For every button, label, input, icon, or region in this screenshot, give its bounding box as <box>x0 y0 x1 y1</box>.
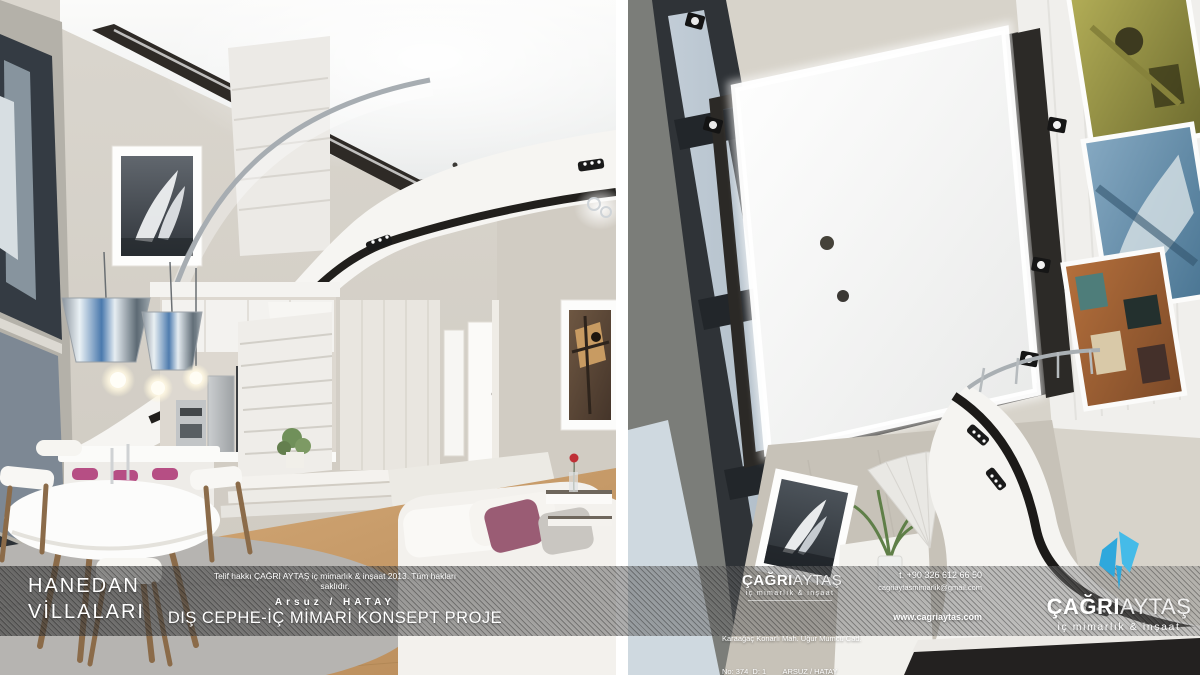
info-band: HANEDAN VİLLALARI Telif hakkı ÇAĞRI AYTA… <box>0 566 1200 636</box>
project-subtitle: DIŞ CEPHE-İÇ MİMARİ KONSEPT PROJE <box>160 609 510 628</box>
brand-logo-large: ÇAĞRIAYTAŞ iç mimarlık & inşaat <box>1038 522 1200 633</box>
address-line-1: Karaağaç Konarlı Mah. Uğur Mumcu Cad. <box>722 633 862 644</box>
presentation-slide: HANEDAN VİLLALARI Telif hakkı ÇAĞRI AYTA… <box>0 0 1200 675</box>
sailboat-artwork <box>112 146 202 266</box>
led-ceiling-panel <box>716 30 1044 460</box>
brand-wordmark-small: ÇAĞRIAYTAŞ <box>742 572 838 589</box>
brand-logo-small: ÇAĞRIAYTAŞ iç mimarlık & inşaat <box>742 572 838 601</box>
address-block: Karaağaç Konarlı Mah. Uğur Mumcu Cad. No… <box>722 610 862 675</box>
brand-wordmark-large: ÇAĞRIAYTAŞ <box>1038 594 1200 620</box>
cagri-aytas-logo-mark-icon <box>1096 522 1142 596</box>
website-text: www.cagriaytas.com <box>878 612 982 622</box>
copyright-text: Telif hakkı ÇAĞRI AYTAŞ iç mimarlık & in… <box>200 571 470 591</box>
brand-tagline-large: iç mimarlık & inşaat <box>1038 621 1200 633</box>
project-title-line2: VİLLALARI <box>28 599 145 625</box>
phone-text: t. +90 326 612 66 50 <box>860 570 982 580</box>
brand-rule <box>748 600 832 601</box>
cubist-artwork <box>561 300 616 430</box>
address-line-2: No: 374 D: 1 ARSUZ / HATAY <box>722 666 862 675</box>
artwork-collage <box>1063 249 1185 409</box>
project-title-line1: HANEDAN <box>28 573 145 599</box>
email-text: cagriaytasmimarlik@gmail.com <box>860 583 982 592</box>
location-text: Arsuz / HATAY <box>200 597 470 608</box>
project-title: HANEDAN VİLLALARI <box>28 573 145 625</box>
brand-tagline-small: iç mimarlık & inşaat <box>742 590 838 597</box>
